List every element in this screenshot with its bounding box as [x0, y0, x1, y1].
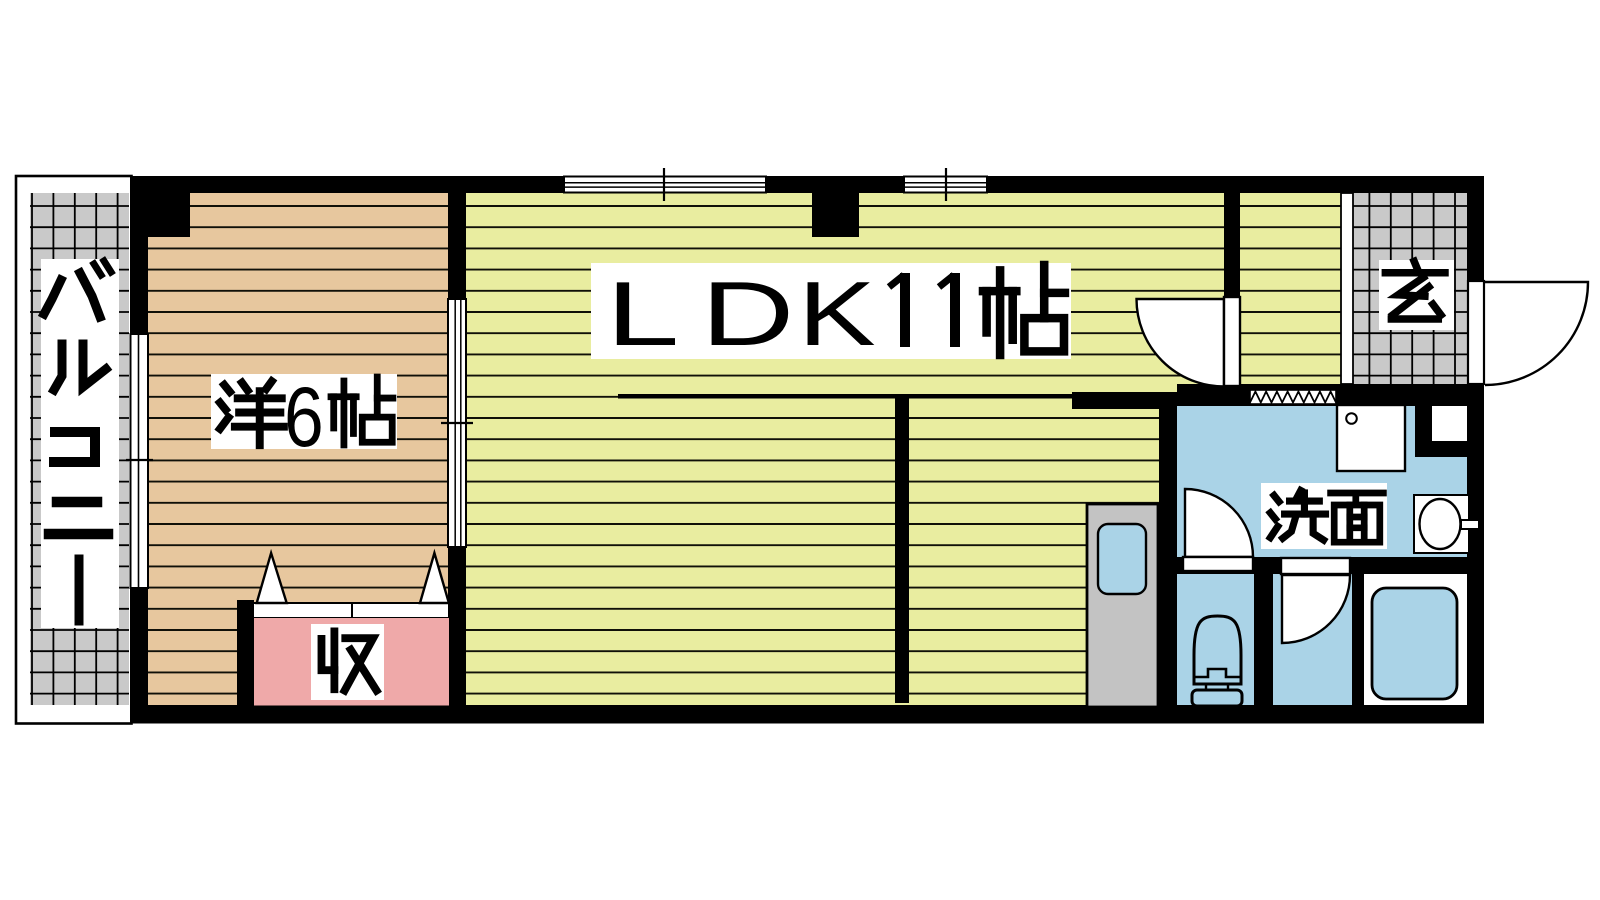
svg-text:6: 6: [284, 369, 324, 464]
svg-text:K: K: [798, 263, 876, 365]
svg-text:D: D: [701, 263, 794, 365]
svg-text:L: L: [606, 263, 679, 365]
